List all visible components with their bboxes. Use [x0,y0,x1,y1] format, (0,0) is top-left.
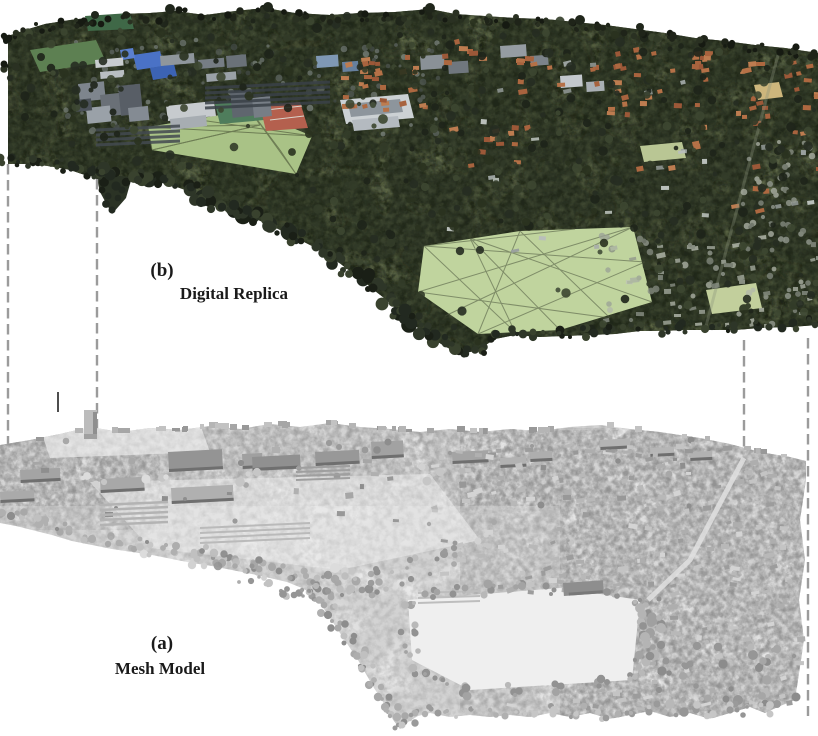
svg-text:(a): (a) [151,633,173,654]
svg-text:Mesh Model: Mesh Model [115,659,205,678]
svg-text:(b): (b) [150,260,173,281]
svg-text:Digital Replica: Digital Replica [180,284,289,303]
